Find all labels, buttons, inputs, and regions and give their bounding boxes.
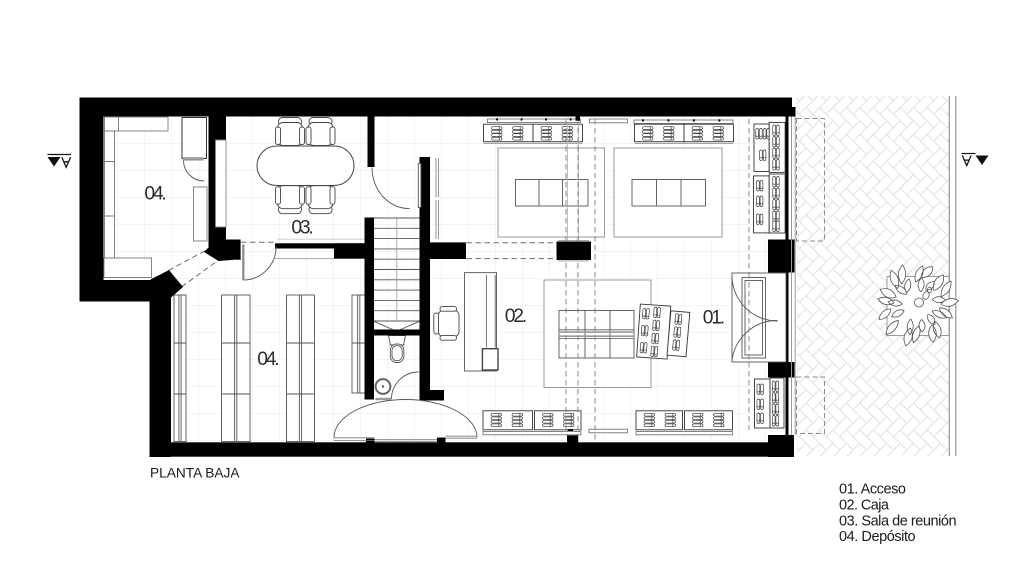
svg-text:04. Depósito: 04. Depósito [839, 529, 916, 545]
svg-text:01.: 01. [703, 307, 725, 328]
svg-text:PLANTA BAJA: PLANTA BAJA [150, 466, 240, 482]
svg-text:04.: 04. [144, 183, 166, 204]
svg-text:02.: 02. [505, 306, 527, 327]
svg-text:03.: 03. [291, 218, 313, 239]
svg-text:03. Sala de reunión: 03. Sala de reunión [839, 513, 957, 529]
svg-text:01. Acceso: 01. Acceso [839, 482, 906, 498]
svg-text:02. Caja: 02. Caja [839, 498, 890, 514]
svg-text:04.: 04. [257, 349, 279, 370]
